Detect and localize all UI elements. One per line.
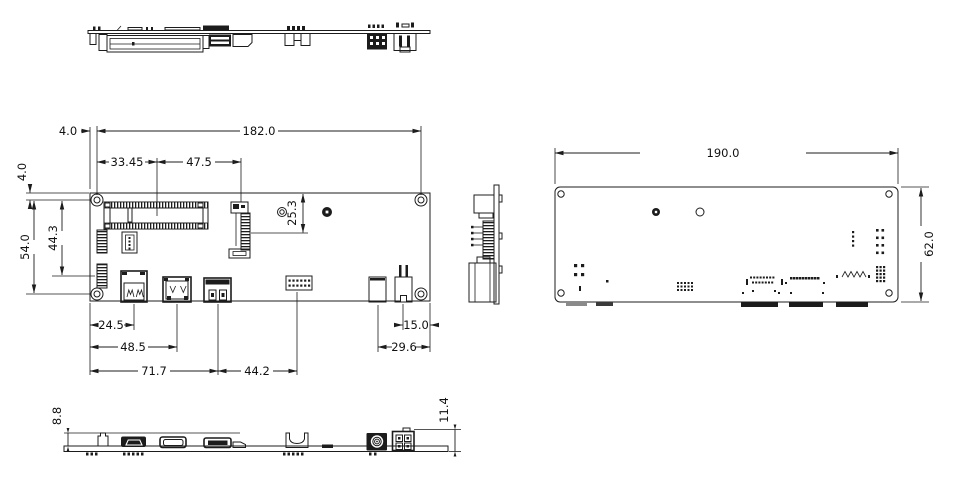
dim-conn3-center: 71.7 [141,364,167,378]
dim-slot-offset: 33.45 [111,155,144,169]
dim-connector-height-right: 11.4 [437,397,451,423]
small-latch [233,442,246,448]
edge-dark-component [209,35,231,47]
header-ladder-bottom [97,264,107,288]
power-connector [395,265,412,302]
bottom-connector-tabs [566,302,868,307]
display-connector [163,277,191,302]
edge-hatched-block [367,34,387,50]
sim-slot-bracket [286,433,308,448]
small-component [322,445,333,449]
drawing-canvas: 4.0 182.0 33.45 47.5 25.3 4.0 54.0 44.3 … [0,0,971,477]
edge-step-connector [233,35,252,47]
side-edge-view [469,185,502,304]
bottom-edge-pins [86,453,377,456]
header-ladder-top [97,230,107,253]
dim-board-width: 190.0 [707,146,740,160]
bottom-view: 190.0 62.0 [555,146,936,307]
dim-usb-center: 24.5 [98,318,124,332]
pin-header [286,276,312,290]
dim-board-height: 62.0 [922,231,936,257]
dim-hole-span-v: 54.0 [18,234,32,260]
m2-card-connector [229,202,250,258]
front-view [90,193,430,302]
dim-header-gap: 44.2 [244,364,270,378]
dim-power-center: 15.0 [403,318,429,332]
bottom-edge-view: 8.8 11.4 [50,397,461,456]
edge-pcie-slot [90,34,209,53]
dim-conn2-center: 48.5 [120,340,146,354]
dim-header-offset-v: 44.3 [46,225,60,251]
edge-u-connector [394,34,416,53]
dim-hole-span-h: 182.0 [243,124,276,138]
dc-jack [367,433,388,451]
top-edge-view [88,23,430,53]
board-dimension-drawing: 4.0 182.0 33.45 47.5 25.3 4.0 54.0 44.3 … [0,0,971,477]
latch-bracket [98,433,108,446]
dim-edge-to-hole-h: 4.0 [59,124,77,138]
bottom-pads-left [574,264,693,291]
bottom-pads-right [742,229,885,294]
pcie-slot [104,202,208,229]
dim-connector-height-left: 8.8 [50,407,64,425]
edge-mid-connector [285,34,310,46]
dim-dc-center: 29.6 [391,340,417,354]
dc-barrel-connector [369,277,386,302]
four-pin-connector [122,232,137,253]
dual-port-connector [204,278,231,302]
bottom-board-outline [555,187,898,302]
hdmi-connector [121,437,146,448]
front-view-dimensions: 4.0 182.0 33.45 47.5 25.3 4.0 54.0 44.3 … [15,124,438,378]
usb-stack-connector [121,271,147,302]
dim-card-offset: 47.5 [186,155,212,169]
atx-power-connector [393,428,415,451]
dim-edge-to-hole-v: 4.0 [15,163,29,181]
dim-card-screw-offset: 25.3 [285,200,299,226]
